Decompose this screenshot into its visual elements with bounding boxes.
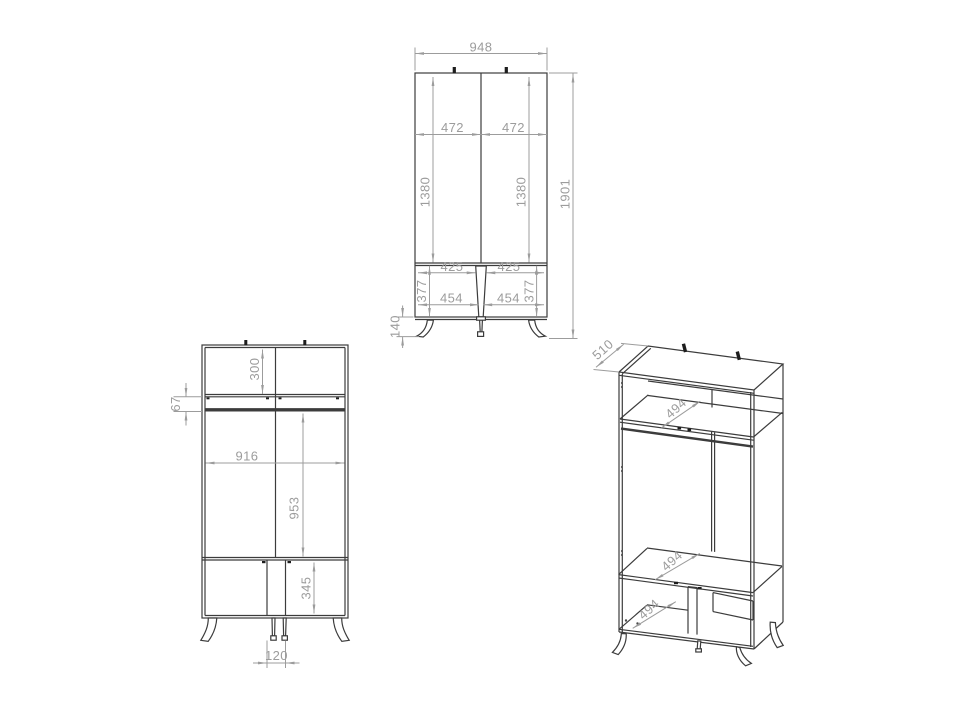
center-leg-plate [477, 317, 486, 320]
handle-mark-left-icon [244, 340, 247, 345]
dim-middle-shelf-depth: 494 [658, 547, 685, 573]
center-leg-back [283, 618, 286, 636]
dim-depth: 510 [589, 336, 616, 362]
rail-hook-icon [688, 428, 692, 431]
mid-shelf-front-edge [619, 575, 753, 593]
center-leg-front-foot [271, 636, 276, 640]
dim-hanging-height: 953 [286, 497, 301, 520]
dim-door-width-right: 472 [502, 120, 525, 135]
left-leg [201, 618, 217, 641]
mid-shelf-right-edge [753, 566, 782, 592]
center-leg-back-foot [282, 636, 287, 640]
hinge-mark-icon [698, 587, 702, 589]
top-shelf-left-edge [620, 395, 648, 419]
technical-drawing-canvas: 948 472 472 1380 1380 1901 425 425 454 4… [0, 0, 958, 719]
rail-bracket-icon [207, 398, 210, 400]
upper-band-top [648, 381, 783, 399]
top-left-strip [622, 348, 651, 374]
center-leg-front [272, 618, 275, 636]
dim-bottom-compartment-height: 345 [298, 577, 313, 600]
front-left-leg [612, 634, 626, 655]
left-leg [417, 320, 434, 337]
dim-door-height-left: 1380 [417, 177, 432, 208]
sub-panel-bottom [713, 612, 753, 620]
right-leg [333, 618, 349, 641]
center-leg-foot [478, 332, 484, 337]
dim-door-height-right: 1380 [513, 177, 528, 208]
top-face [619, 346, 783, 390]
center-leg-line [482, 320, 483, 332]
top-front-band [619, 375, 754, 393]
door-handle-right-icon [505, 67, 508, 73]
wardrobe-drawing-svg: 948 472 472 1380 1380 1901 425 425 454 4… [0, 0, 958, 719]
dim-drawer-height-left: 377 [414, 280, 429, 303]
hinge-mark-icon [674, 582, 678, 584]
top-shelf-front-edge [620, 419, 754, 437]
top-shelf-right-edge [754, 412, 783, 437]
dim-interior-width: 916 [236, 448, 259, 463]
rail-hook-icon [678, 427, 682, 430]
dim-top-shelf-depth: 494 [662, 395, 689, 421]
dim-bottom-shelf-depth: 494 [635, 596, 662, 622]
front-right-leg [736, 647, 751, 666]
rail-bracket-icon [336, 398, 339, 400]
center-front-leg-foot [696, 649, 702, 652]
center-taper-leg [476, 266, 487, 317]
dim-drawer-front-left: 454 [440, 291, 463, 306]
front-interior-view: 300 67 916 953 345 120 [168, 340, 349, 668]
rail-bracket-icon [279, 398, 282, 400]
mid-shelf-thickness [619, 578, 753, 596]
dim-leg-height: 140 [387, 315, 402, 338]
dim-door-width-left: 472 [441, 120, 464, 135]
center-leg-line [480, 320, 481, 332]
dim-drawer-height-right: 377 [521, 280, 536, 303]
front-exterior-view: 948 472 472 1380 1380 1901 425 425 454 4… [387, 39, 577, 348]
dim-rail-offset: 67 [168, 396, 183, 411]
dim-drawer-opening-left: 425 [441, 259, 464, 274]
center-front-leg [697, 641, 701, 649]
bottom-front-edge [619, 632, 754, 649]
hinge-mark-icon [288, 561, 292, 563]
dim-top-compartment-height: 300 [247, 358, 262, 381]
rail-bracket-icon [266, 398, 269, 400]
handle-mark-right-icon [303, 340, 306, 345]
isometric-view: 510 494 494 494 [589, 336, 783, 666]
handle-flag-right-icon [736, 351, 741, 360]
dim-overall-height: 1901 [557, 179, 572, 210]
door-handle-left-icon [453, 67, 456, 73]
dim-center-divider-width: 120 [265, 648, 288, 663]
floor-front-edge [619, 629, 753, 646]
dim-overall-width: 948 [470, 39, 493, 54]
back-right-leg [770, 622, 783, 647]
dim-drawer-front-right: 454 [497, 291, 520, 306]
hinge-mark-icon [262, 561, 266, 563]
dim-drawer-opening-right: 425 [498, 259, 521, 274]
right-leg [529, 320, 546, 337]
